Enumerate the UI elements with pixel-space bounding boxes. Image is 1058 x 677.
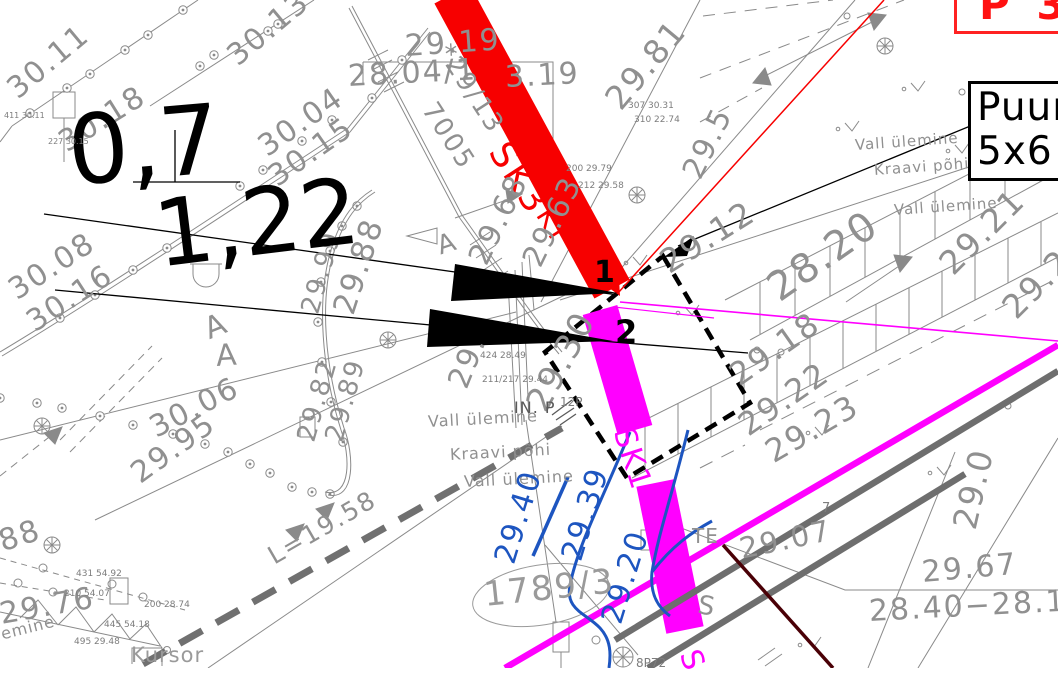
cad-drawing-viewport[interactable]: 30.1130.1330.1830.0430.1530.0830.1630.06…	[0, 0, 1058, 668]
dashed-gray-lines	[0, 0, 1058, 610]
info-box-line1: Puur	[977, 86, 1058, 130]
hedge-loop	[323, 190, 375, 496]
red-callout-box: P 33	[954, 0, 1058, 34]
survey-linework	[0, 0, 1058, 668]
dashed-bold-line	[143, 428, 562, 664]
info-box-line2: 5x6 r	[977, 130, 1058, 174]
info-box: Puur 5x6 r	[968, 81, 1058, 181]
red-callout-text: P 33	[979, 0, 1058, 29]
